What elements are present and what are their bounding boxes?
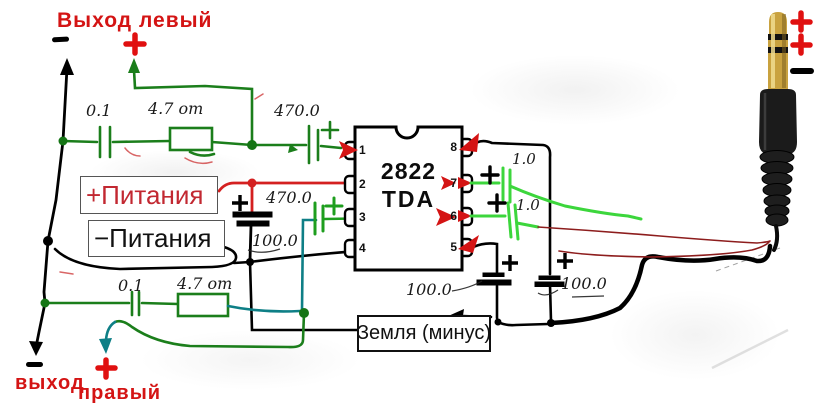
plus-mark [793, 36, 810, 53]
arrow-up-green [128, 58, 140, 73]
res-bottom-value: 4.7 om [177, 274, 232, 293]
arrow-down-black [29, 341, 43, 356]
power-plus-text: +Питания [86, 180, 203, 211]
arrow-up-black [60, 58, 74, 75]
bottom-channel-wires [45, 292, 304, 347]
minus-mark [52, 37, 69, 43]
plus-mark [793, 13, 810, 30]
ic-pin-4: 4 [359, 241, 373, 255]
audio-jack-photo [759, 12, 814, 250]
ground-text: Земля (минус) [357, 322, 491, 345]
plus-mark [126, 35, 144, 53]
ic-pin-7: 7 [443, 176, 457, 190]
junction-dot [495, 319, 502, 326]
minus-mark [26, 362, 43, 367]
power-plus-label: +Питания [80, 176, 218, 214]
right-output-title-line1: выход [15, 372, 85, 395]
ic-pin-3: 3 [359, 210, 373, 224]
ic-pin-5: 5 [443, 240, 457, 254]
minus-mark [790, 68, 814, 74]
power-minus-text: −Питания [94, 223, 211, 254]
arrow-down-teal [99, 338, 112, 354]
cap-mid-value: 470.0 [266, 188, 312, 207]
junction-dot-green [41, 299, 50, 308]
teal-wire-bottom [228, 306, 300, 311]
cap-gnd-right-value: 100.0 [561, 274, 607, 293]
right-output-title-line2: правый [78, 382, 161, 405]
junction-dot-green [247, 140, 257, 150]
left-rail-wire [36, 68, 67, 347]
res-top-value: 4.7 om [148, 99, 203, 118]
cap-pin6-value: 1.0 [516, 196, 540, 214]
cap-gnd-left-value: 100.0 [406, 280, 452, 299]
resistor-bottom [178, 294, 228, 316]
right-output-teal-lead [106, 322, 115, 340]
ic-pin-2: 2 [359, 177, 373, 191]
power-minus-label: −Питания [88, 220, 225, 257]
junction-dot [43, 236, 53, 246]
cap-out-top-value: 470.0 [274, 101, 320, 120]
resistor-top [170, 128, 212, 150]
cap-in-top-value: 0.1 [86, 101, 111, 120]
plus-mark [98, 360, 115, 377]
cap-power-value: 100.0 [252, 231, 298, 250]
left-output-title: Выход левый [57, 9, 212, 33]
junction-dot [246, 258, 254, 266]
cap-in-bottom-value: 0.1 [118, 276, 143, 295]
cap-pin7-value: 1.0 [512, 150, 536, 168]
junction-dot-green [299, 308, 309, 318]
ic-pin-6: 6 [443, 209, 457, 223]
ic-pin-8: 8 [443, 140, 457, 154]
junction-dot-red [248, 179, 257, 188]
ground-label: Земля (минус) [357, 315, 491, 352]
schematic-page: Выход левый 0.1 4.7 om 470.0 +Питания −П… [0, 0, 821, 414]
photo-scratches [712, 248, 788, 368]
junction-dot-green [59, 137, 68, 146]
jack-signal-wires [538, 227, 770, 257]
ic-pin-1: 1 [359, 143, 373, 157]
